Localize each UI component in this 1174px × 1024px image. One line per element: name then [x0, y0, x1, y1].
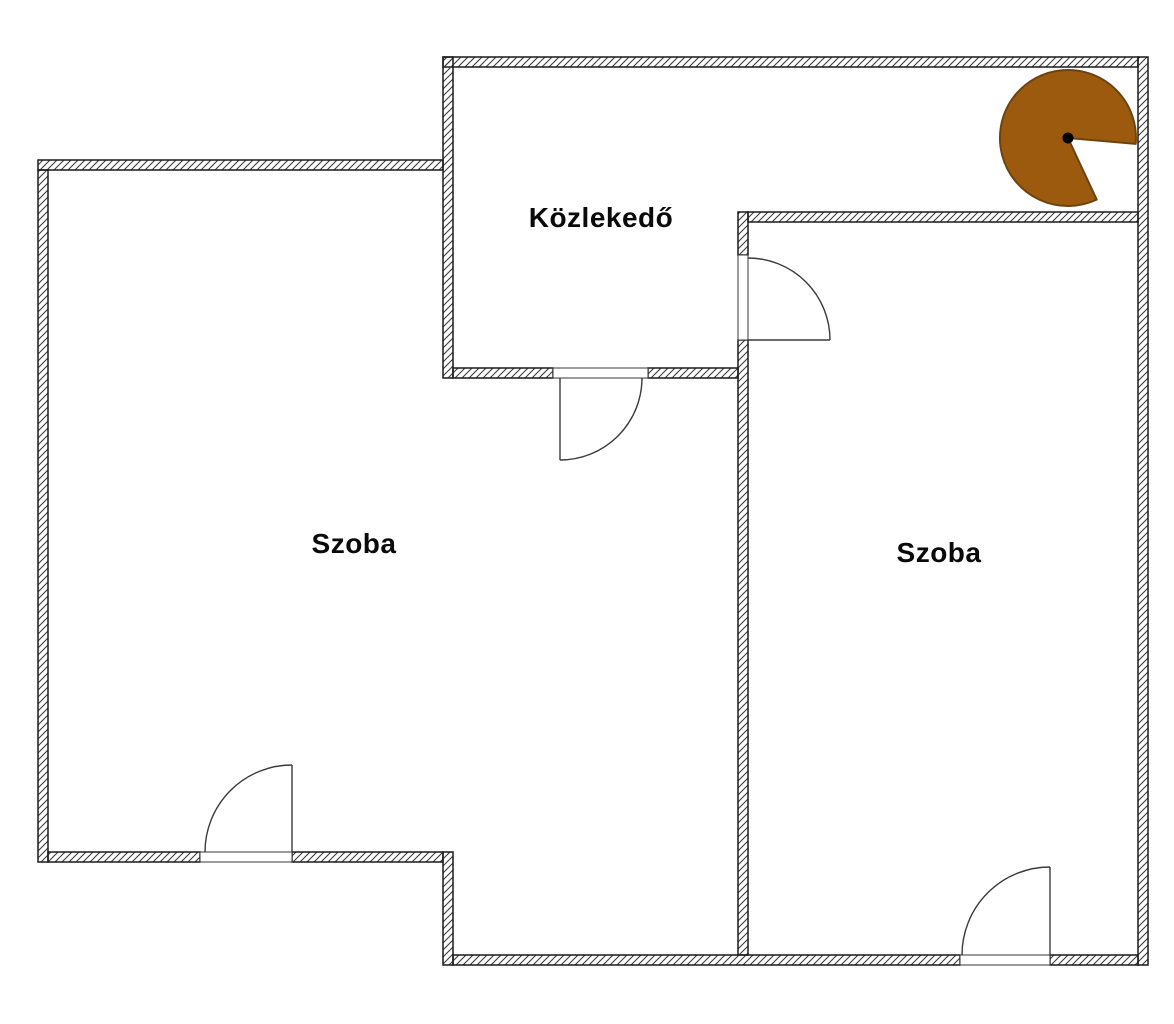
- door-swing-rightroom: [962, 867, 1050, 955]
- wall-bottom-a: [453, 955, 960, 965]
- wall-hallway-bottom-b: [648, 368, 738, 378]
- door-opening-rightroom: [960, 955, 1050, 965]
- wall-right: [1138, 57, 1148, 965]
- room-label-hallway: Közlekedő: [529, 202, 674, 234]
- wall-hallway-bottom-a: [453, 368, 553, 378]
- door-opening-leftroom: [200, 852, 292, 862]
- wall-middle-lower: [738, 340, 748, 955]
- door-swing-hallway: [560, 378, 642, 460]
- wall-hallway-left: [443, 57, 453, 378]
- door-swing-middle: [748, 258, 830, 340]
- wall-bottom-b: [1050, 955, 1138, 965]
- door-swing-leftroom: [205, 765, 292, 852]
- wall-top: [443, 57, 1138, 67]
- wall-leftroom-bottom-a: [48, 852, 200, 862]
- wall-rightroom-top: [748, 212, 1138, 222]
- wall-leftroom-bottom-b: [292, 852, 443, 862]
- wall-step: [443, 852, 453, 965]
- walls-group: [38, 57, 1148, 965]
- wall-leftroom-top: [38, 160, 443, 170]
- room-label-right-room: Szoba: [897, 537, 982, 569]
- wall-middle-upper: [738, 212, 748, 255]
- floor-plan: Közlekedő Szoba Szoba: [0, 0, 1174, 1024]
- viewpoint-marker[interactable]: [1000, 70, 1136, 206]
- door-opening-middle: [738, 255, 748, 340]
- door-opening-hallway: [553, 368, 648, 378]
- wall-left: [38, 170, 48, 862]
- floor-plan-drawing: [0, 0, 1174, 1024]
- viewpoint-center-dot: [1063, 133, 1074, 144]
- room-label-left-room: Szoba: [312, 528, 397, 560]
- doors-group: [205, 258, 1050, 955]
